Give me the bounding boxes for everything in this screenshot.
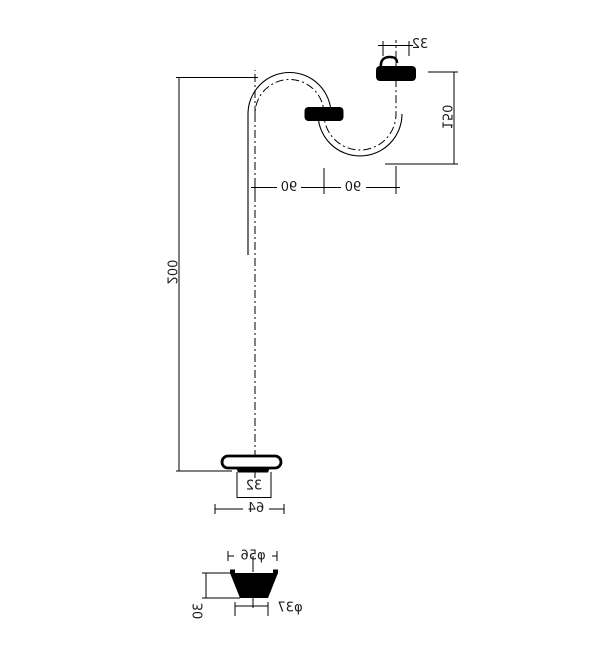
plug-rim-right xyxy=(273,570,278,574)
plug-rim-left xyxy=(230,570,235,574)
dim-label-outlet-diameter: 32 xyxy=(412,37,429,52)
s-trap-diagram: 32 150 90 90 200 32 64 xyxy=(0,0,600,650)
drawing-canvas: 32 150 90 90 200 32 64 xyxy=(0,0,600,650)
dim-label-tailpipe-diameter: 32 xyxy=(246,479,263,494)
rubber-plug: φ56 30 φ37 xyxy=(192,549,303,620)
dim-label-outlet-height: 150 xyxy=(439,105,454,130)
dim-plug-top: φ56 xyxy=(228,549,277,573)
flange xyxy=(222,456,281,468)
dim-label-flange-width: 64 xyxy=(248,501,265,516)
dim-trap-spans: 90 90 xyxy=(251,166,400,195)
trap-nut xyxy=(305,107,344,121)
plug-body xyxy=(230,573,278,598)
s-trap-pipe xyxy=(222,40,416,478)
dim-plug-height: 30 xyxy=(192,573,241,619)
dim-flange: 32 64 xyxy=(215,472,284,516)
dim-label-plug-top: φ56 xyxy=(240,549,265,564)
outlet-nut xyxy=(376,66,416,81)
dim-label-span-right: 90 xyxy=(345,180,362,195)
dim-label-plug-height: 30 xyxy=(192,603,207,620)
dim-plug-bottom: φ37 xyxy=(235,598,303,616)
dim-label-tailpipe-length: 200 xyxy=(164,260,179,285)
dim-outlet-diameter: 32 xyxy=(378,37,428,56)
dim-tailpipe-length: 200 xyxy=(164,78,259,472)
flange-collar xyxy=(236,467,270,473)
dim-label-plug-bottom: φ37 xyxy=(277,601,302,616)
dim-label-span-left: 90 xyxy=(281,180,298,195)
